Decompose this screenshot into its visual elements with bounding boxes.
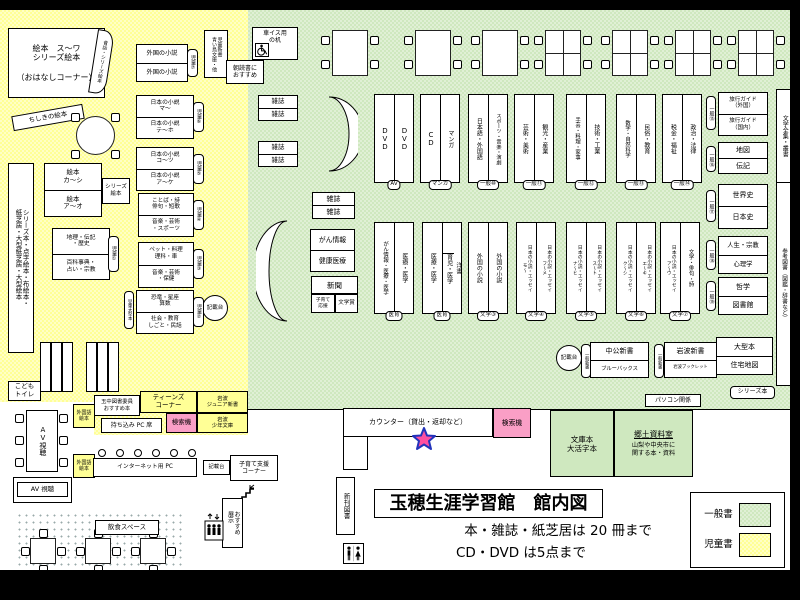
recommended-display-shelf: おすすめ 展示 (222, 498, 243, 548)
shelf-tag: 児童⑦ (187, 49, 198, 77)
chair (453, 36, 462, 45)
legend: 一般書 児童書 (690, 492, 785, 568)
chair (59, 458, 68, 467)
chair (534, 36, 543, 45)
foreign-picture-books-shelf: 外国語 絵本 (73, 454, 95, 478)
series-books-tag: シリーズ本 (730, 386, 775, 399)
letterbox-bottom (0, 570, 800, 600)
search-terminal: 検索機 (166, 413, 197, 433)
shelf-religion-psychology: 人生・宗教心理学 (718, 236, 768, 274)
shelf-tag: 一般⑲ (706, 281, 716, 311)
shelf-label: 地図 (718, 142, 768, 159)
shelf-label: 伝記 (718, 159, 768, 175)
shelf-label: ペット・料理 理科・車 (138, 242, 194, 266)
bookshelf-strip (51, 342, 62, 392)
children-science-society-shelf: 恐竜・星座 算数 社会・教育 しごと・民話 (136, 290, 194, 334)
shelf-tag: 文学④ (525, 311, 547, 321)
shelf-label: 人生・宗教 (718, 236, 768, 256)
shelf-column: 政治・法律 (683, 94, 703, 183)
shelf-large-books: 大型本住宅地図 (716, 337, 773, 375)
chair (650, 60, 659, 69)
magazine-shelf: 雑誌雑誌 (258, 95, 298, 121)
shelf-tag: 一般新書 (581, 344, 591, 378)
shelf-label: 雑誌 (258, 155, 298, 168)
room-subtitle: 山梨や中央市に 関する本・資料 (632, 442, 675, 457)
children-foreign-fiction-shelf: 外国の小説 外国の小説 (136, 44, 188, 82)
jhs-recommended-display: 玉中図書委員 おすすめ本 (94, 395, 140, 416)
elevator-icon (204, 513, 224, 541)
kids-toilet: こども トイレ (8, 381, 41, 401)
shelf-tag: 文学⑤ (575, 311, 597, 321)
shelf-label: 日本の小説 コ〜ツ (136, 147, 194, 170)
chair (152, 449, 160, 457)
shelf-column: 日本の小説・エッセイ モ〜 (516, 222, 537, 314)
shelf-column: スポーツ・音楽・演劇 (489, 94, 509, 183)
room-title: 郷土資料室 (634, 430, 673, 439)
shelf-column: 日本の小説・エッセイ ア〜ウ (660, 222, 681, 314)
shelf-languages-sports: 日本語・外国語 スポーツ・音楽・演劇 一般⑩ (468, 94, 508, 183)
shelf-label: 音楽・芸術 ・スポーツ (138, 216, 194, 238)
av-viewing-label: AV 視聴 (17, 482, 68, 497)
reading-table (415, 30, 451, 76)
restroom-icon (343, 543, 364, 564)
shelf-iwanami-shinsho: 岩波新書岩波ブックレット (664, 342, 717, 378)
shelf-label: 外国の小説 (136, 44, 188, 64)
chair (111, 150, 120, 159)
shelf-tag: 医育 (385, 311, 402, 321)
chair (601, 36, 610, 45)
shelf-tag: 一般⑱ (706, 240, 716, 270)
shelf-column: 外国の小説 (468, 222, 489, 314)
shelf-label: 雑誌 (258, 141, 298, 155)
bookshelf-strip (62, 342, 73, 392)
shelf-tag: AV (387, 180, 400, 190)
reading-table (675, 30, 711, 76)
children-pets-cooking-shelf: ペット・料理 理科・車 音楽・芸術 ・保健 (138, 242, 194, 288)
chair (727, 60, 736, 69)
shelf-crafts-tech: 手芸・料理・家事 技術・工業 一般⑫ (566, 94, 606, 183)
shelf-column: 医療・医学 (422, 222, 443, 314)
reading-table (612, 30, 648, 76)
shelf-column: 技術・工業 (587, 94, 607, 183)
round-table (76, 116, 115, 155)
shelf-column: 洋書 育児・医学 (443, 222, 463, 314)
new-books-shelf: 新刊図書 (336, 477, 355, 535)
chair (131, 547, 140, 556)
shelf-label: 洋書 (454, 262, 461, 274)
shelf-column: 手芸・料理・家事 (566, 94, 587, 183)
shelf-travel-guides: 旅行ガイド （外国）旅行ガイド （国内） (718, 92, 768, 136)
shelf-column: マンガ (441, 94, 461, 183)
shelf-tag: 児童① (108, 236, 119, 272)
shelf-label: 旅行ガイド （国内） (718, 115, 768, 137)
chair (713, 36, 722, 45)
shelf-label: ことば・詩 俳句・短歌 (138, 193, 194, 216)
chair (57, 547, 66, 556)
shelf-column: 民俗・教育 (637, 94, 657, 183)
writing-desk: 記載台 (556, 345, 582, 371)
shelf-column: がん情報・医療・医学 (374, 222, 395, 314)
children-language-arts-shelf: ことば・詩 俳句・短歌 音楽・芸術 ・スポーツ (138, 193, 194, 237)
shelf-label: 岩波新書 (664, 342, 717, 361)
shelf-column: 観光・産業 (535, 94, 555, 183)
floor-map: 絵本 ス〜ワ シリーズ絵本 （おはなしコーナー） 昔話・シリーズ絵本 ちしきの絵… (0, 0, 800, 600)
shelf-tag: 一般⑬ (625, 180, 648, 190)
chair (520, 60, 529, 69)
chair (76, 547, 85, 556)
shelf-foreign-fiction: 外国の小説 外国の小説 文学③ (468, 222, 508, 314)
shelf-column: DVD (374, 94, 395, 183)
chair (713, 60, 722, 69)
iwanami-shonen-shelf: 岩波 少年文庫 (197, 413, 248, 433)
foreign-picture-books-shelf: 外国語 絵本 (73, 404, 95, 428)
shelf-label: 外国の小説 (136, 64, 188, 83)
pc-related-label: パソコン関係 (645, 394, 701, 407)
chair (134, 449, 142, 457)
shelf-label: 図書館 (718, 297, 768, 316)
shelf-label: 旅行ガイド （外国） (718, 92, 768, 115)
series-picture-books-shelf: シリーズ 絵本 (102, 178, 130, 204)
shelf-jfiction-4: 日本の小説・エッセイ モ〜 日本の小説・エッセイ フ〜メ 文学④ (516, 222, 556, 314)
shelf-label: 雑誌 (312, 206, 355, 219)
you-are-here-star-icon (412, 427, 436, 451)
shelf-column: 外国の小説 (489, 222, 509, 314)
curved-shelf (256, 218, 298, 326)
shelf-column: 日本語・外国語 (468, 94, 489, 183)
cancer-info-shelf: がん情報 (310, 229, 355, 251)
chair (453, 60, 462, 69)
newspaper-rack: 新聞 (311, 276, 358, 294)
shelf-column: 日本の小説・エッセイ ス〜ト (587, 222, 607, 314)
chair (583, 60, 592, 69)
chair (471, 60, 480, 69)
shelf-art-tourism: 芸術・美術 観光・産業 一般⑪ (514, 94, 554, 183)
chair (111, 113, 120, 122)
reading-table (332, 30, 368, 76)
shelf-label: 岩波ブックレット (664, 361, 717, 379)
shelf-column: 税金・福祉 (662, 94, 683, 183)
shelf-column: 日本の小説・エッセイ ク〜シ (616, 222, 637, 314)
shelf-label: 育児・医学 (443, 253, 455, 284)
series-braille-picture-books-shelf: シリーズ本・点字絵本・布絵本・ 紙芝居・大型紙芝居・大型絵本 (8, 163, 34, 353)
magazine-shelf: 雑誌雑誌 (258, 141, 298, 167)
legend-swatch-general (739, 503, 771, 527)
chair (534, 60, 543, 69)
shelf-tag: 文学⑦ (669, 311, 691, 321)
shelf-math-folklore: 数学・自然科学 民俗・教育 一般⑬ (616, 94, 656, 183)
shelf-tag: マンガ (429, 180, 452, 190)
shelf-label: 雑誌 (258, 109, 298, 122)
shelf-chuko-shinsho: 中公新書ブルーバックス (590, 342, 649, 378)
legend-label-children: 児童書 (704, 539, 733, 550)
shelf-column: 日本の小説・エッセイ ナ〜ヒ (566, 222, 587, 314)
chair (520, 36, 529, 45)
shelf-tag: 一般新書 (654, 344, 664, 378)
iwanami-junior-shelf: 岩波 ジュニア新書 (197, 391, 248, 413)
chair (15, 414, 24, 423)
shelf-label: 哲学 (718, 277, 768, 297)
shelf-label: 絵本 カ〜シ (44, 163, 102, 191)
shelf-tag: 一般⑰ (706, 190, 716, 222)
shelf-jfiction-7: 日本の小説・エッセイ ア〜ウ 文学・俳句・詩 文学⑦ (660, 222, 700, 314)
shelf-tag: 一般⑭ (671, 180, 694, 190)
dining-space-label: 飲食スペース (95, 520, 159, 535)
local-history-room: 郷土資料室 山梨や中央市に 関する本・資料 (614, 410, 693, 477)
morning-reading-display: 朝読書に おすすめ (226, 60, 264, 84)
shelf-tag: 医育 (433, 311, 450, 321)
shelf-medical-1: がん情報・医療・医学 医療・医学 医育 (374, 222, 414, 314)
shelf-label: 日本史 (718, 207, 768, 229)
chair (471, 36, 480, 45)
reading-table (482, 30, 518, 76)
chair (59, 436, 68, 445)
shelf-cd-manga: CD マンガ マンガ (420, 94, 460, 183)
shelf-medical-2: 医療・医学 洋書 育児・医学 医育 (422, 222, 462, 314)
children-japanese-fiction-shelf-ma: 日本の小説 マ〜 日本の小説 テ〜ホ (136, 95, 194, 139)
shelf-column: CD (420, 94, 441, 183)
chair (370, 60, 379, 69)
shelf-tag: 文学③ (477, 311, 499, 321)
shelf-history: 世界史日本史 (718, 184, 768, 229)
shelf-tag: 児童⑤ (193, 154, 204, 184)
curved-shelf (320, 94, 358, 174)
chair (583, 36, 592, 45)
chair (71, 113, 80, 122)
picture-books-shelf: 絵本 カ〜シ 絵本 ア〜オ (44, 163, 102, 217)
shelf-label: ブルーバックス (590, 361, 649, 379)
shelf-column: 数学・自然科学 (616, 94, 637, 183)
chair (776, 60, 785, 69)
shelf-label: 中公新書 (590, 342, 649, 361)
shelf-label: 住宅地図 (716, 357, 773, 376)
shelf-column: 日本の小説・エッセイ フ〜メ (537, 222, 557, 314)
children-large-books-tag: 児童大型本 (124, 291, 134, 329)
chair (15, 458, 24, 467)
shelf-label: 恐竜・星座 算数 (136, 290, 194, 313)
shelf-label: 地理・伝記 ・歴史 (52, 228, 110, 255)
shelf-philosophy-library: 哲学図書館 (718, 277, 768, 315)
shelf-label: 心理学 (718, 256, 768, 275)
dining-table (85, 538, 111, 564)
shelf-tag: 一般⑪ (523, 180, 546, 190)
writing-desk: 記載台 (202, 295, 228, 321)
chair (59, 414, 68, 423)
wheelchair-icon (255, 43, 269, 57)
shelf-tag: 一般⑩ (477, 180, 499, 190)
childcare-support-corner: 子育て支援 コーナー (230, 455, 278, 481)
shelf-tag: 一般⑮ (706, 96, 716, 130)
search-terminal: 検索機 (493, 408, 531, 438)
magazine-shelf: 雑誌雑誌 (312, 192, 355, 219)
chair (71, 150, 80, 159)
bookshelf-strip (86, 342, 97, 392)
chair (650, 36, 659, 45)
dining-table (30, 538, 56, 564)
shelf-tax-politics: 税金・福祉 政治・法律 一般⑭ (662, 94, 702, 183)
shelf-column: 芸術・美術 (514, 94, 535, 183)
health-medical-shelf: 健康医療 (310, 250, 355, 272)
bookshelf-strip (40, 342, 51, 392)
chair (776, 36, 785, 45)
children-geography-shelf: 地理・伝記 ・歴史 百科事典・ 占い・宗教 (52, 228, 110, 280)
chair (404, 60, 413, 69)
map-title: 玉穂生涯学習館 館内図 (374, 489, 603, 518)
chair (112, 547, 121, 556)
service-counter-wing (343, 436, 368, 470)
shelf-label: 雑誌 (312, 192, 355, 206)
chair (601, 60, 610, 69)
chair (15, 436, 24, 445)
childcare-support-display: 子育て 応援 (311, 294, 335, 313)
shelf-label: 日本の小説 テ〜ホ (136, 118, 194, 140)
letterbox-top (0, 0, 800, 10)
shelf-dvd: DVD DVD AV (374, 94, 414, 183)
writing-desk: 記載台 (203, 460, 230, 475)
shelf-label: 日本の小説 ア〜ケ (136, 170, 194, 192)
chair (727, 36, 736, 45)
shelf-column: 文学・俳句・詩 (681, 222, 701, 314)
chair (167, 547, 176, 556)
chair (21, 547, 30, 556)
children-paperback-shelf: 児童新書 青い鳥文庫・他 (204, 30, 228, 78)
chair (39, 529, 48, 538)
legend-swatch-children (739, 533, 771, 557)
shelf-column: 医療・医学 (395, 222, 415, 314)
shelf-label: 大型本 (716, 337, 773, 357)
shelf-tag: 児童⑥ (193, 102, 204, 132)
shelf-jfiction-5: 日本の小説・エッセイ ナ〜ヒ 日本の小説・エッセイ ス〜ト 文学⑤ (566, 222, 606, 314)
shelf-label: 日本の小説 マ〜 (136, 95, 194, 118)
shelf-column: DVD (395, 94, 415, 183)
shelf-tag: 児童② (193, 297, 204, 327)
shelf-label: 百科事典・ 占い・宗教 (52, 255, 110, 281)
shelf-tag: 文学⑥ (625, 311, 647, 321)
shelf-tag: 一般⑫ (575, 180, 598, 190)
shelf-label: 雑誌 (258, 95, 298, 109)
shelf-label: 世界史 (718, 184, 768, 207)
teens-corner-label: ティーンズ コーナー (140, 391, 197, 413)
bookshelf-strip (97, 342, 108, 392)
byo-pc-seats: 持ち込み PC 席 (101, 418, 162, 433)
chair (370, 36, 379, 45)
chair (664, 36, 673, 45)
chair (116, 449, 124, 457)
shelf-tag: 一般⑯ (706, 146, 716, 172)
paperback-large-print-room: 文庫本 大活字本 (550, 410, 614, 477)
shelf-tag: 児童③ (193, 249, 204, 279)
shelf-label: 社会・教育 しごと・民話 (136, 313, 194, 335)
literary-award-display: 文学賞 (335, 294, 358, 313)
chair (404, 36, 413, 45)
chair (188, 449, 196, 457)
bookshelf-strip (108, 342, 119, 392)
av-viewing-table: AV視聴 (26, 410, 58, 472)
children-japanese-fiction-shelf-ko: 日本の小説 コ〜ツ 日本の小説 ア〜ケ (136, 147, 194, 191)
chair (321, 60, 330, 69)
chair (321, 36, 330, 45)
chair (664, 60, 673, 69)
shelf-label: 音楽・芸術 ・保健 (138, 266, 194, 289)
loan-limit-note-books: 本・雑誌・紙芝居は 20 冊まで (390, 519, 652, 537)
chair (170, 449, 178, 457)
shelf-column: 日本の小説・エッセイ エ〜キ (637, 222, 657, 314)
shelf-label: 絵本 ア〜オ (44, 191, 102, 218)
reading-table (545, 30, 581, 76)
internet-pc-counter: インターネット用 PC (93, 458, 197, 477)
shelf-maps-biography: 地図伝記 (718, 142, 768, 174)
shelf-tag: 児童④ (193, 200, 204, 230)
dining-table (140, 538, 166, 564)
shelf-jfiction-6: 日本の小説・エッセイ ク〜シ 日本の小説・エッセイ エ〜キ 文学⑥ (616, 222, 656, 314)
chair (98, 449, 106, 457)
loan-limit-note-av: CD・DVD は5点まで (390, 541, 652, 559)
letterbox-right (790, 0, 800, 600)
reading-table (738, 30, 774, 76)
legend-label-general: 一般書 (704, 509, 733, 520)
